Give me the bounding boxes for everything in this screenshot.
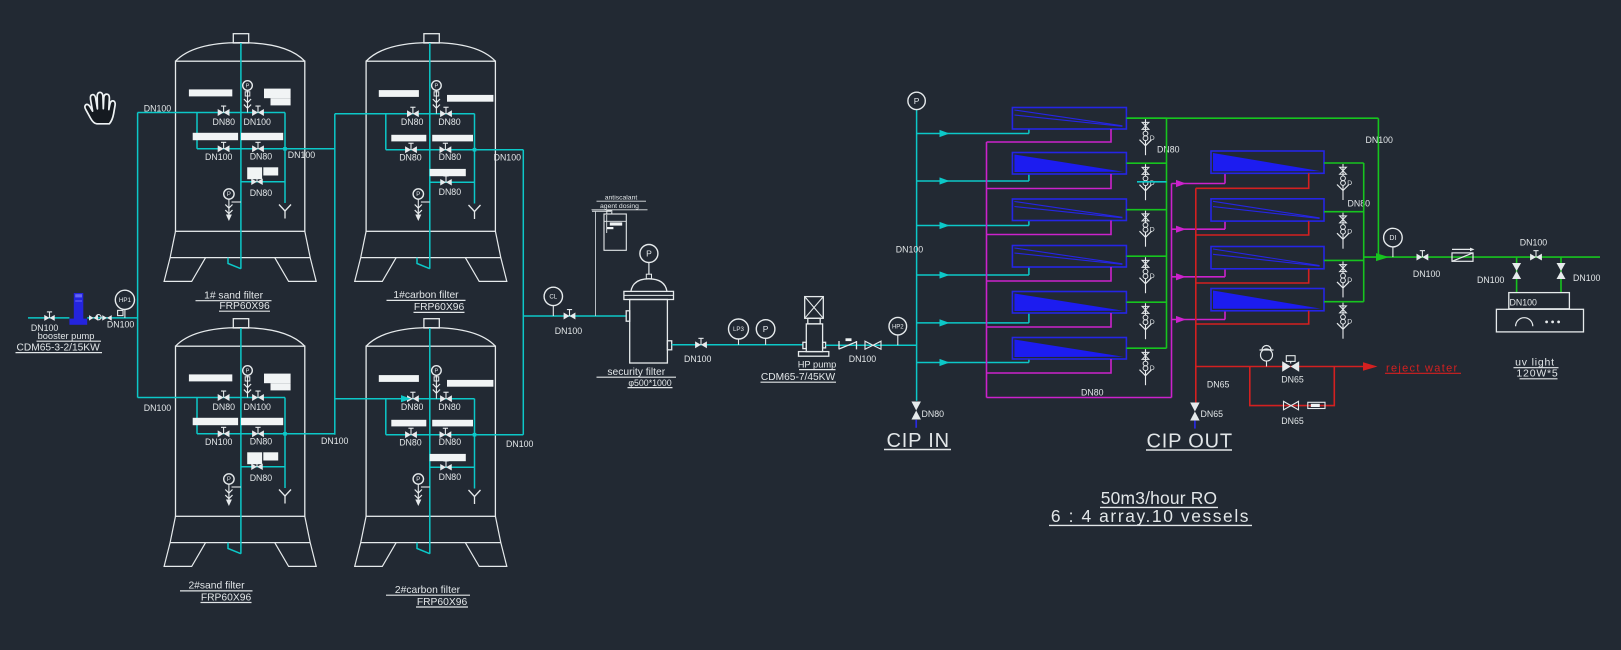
svg-text:DN100: DN100	[1520, 237, 1547, 247]
svg-text:DN100: DN100	[684, 354, 711, 364]
svg-text:CIP OUT: CIP OUT	[1147, 430, 1233, 452]
svg-text:P: P	[435, 369, 439, 375]
svg-text:DN65: DN65	[1201, 409, 1224, 419]
svg-text:P: P	[416, 192, 420, 198]
svg-text:DN80: DN80	[438, 402, 461, 412]
svg-text:1#carbon filter: 1#carbon filter	[393, 290, 459, 301]
svg-text:P: P	[914, 96, 920, 106]
svg-text:DN100: DN100	[896, 245, 923, 255]
svg-text:HP pump: HP pump	[798, 360, 837, 370]
svg-text:P: P	[227, 192, 231, 198]
svg-text:CL: CL	[549, 294, 557, 301]
svg-text:DN80: DN80	[439, 437, 462, 447]
svg-text:DN80: DN80	[399, 437, 422, 447]
svg-text:DN80: DN80	[439, 152, 462, 162]
svg-text:DN100: DN100	[144, 403, 171, 413]
svg-text:DN80: DN80	[250, 188, 273, 198]
svg-text:DN80: DN80	[438, 117, 461, 127]
svg-text:CDM65-3-2/15KW: CDM65-3-2/15KW	[17, 342, 101, 353]
svg-text:DN80: DN80	[250, 151, 273, 161]
svg-text:2#sand filter: 2#sand filter	[188, 581, 245, 592]
svg-text:agent dosing: agent dosing	[600, 203, 639, 210]
svg-text:P: P	[246, 84, 250, 90]
svg-text:DN100: DN100	[244, 402, 271, 412]
svg-text:antiscalant: antiscalant	[605, 195, 638, 202]
svg-text:DN100: DN100	[494, 153, 521, 163]
svg-text:DN65: DN65	[1281, 416, 1304, 426]
svg-text:DN80: DN80	[1348, 198, 1371, 208]
svg-text:booster pump: booster pump	[38, 331, 95, 341]
svg-text:P: P	[416, 477, 420, 483]
svg-text:φ500*1000: φ500*1000	[628, 378, 671, 388]
svg-text:DN100: DN100	[506, 439, 533, 449]
svg-text:HP2: HP2	[892, 324, 904, 330]
svg-text:6 : 4 array.10 vessels: 6 : 4 array.10 vessels	[1051, 506, 1250, 526]
svg-text:DN80: DN80	[213, 117, 236, 127]
svg-text:DN100: DN100	[244, 117, 271, 127]
svg-text:DN100: DN100	[1413, 269, 1440, 279]
svg-text:DN80: DN80	[250, 436, 273, 446]
svg-text:P: P	[646, 249, 652, 259]
svg-text:120W*5: 120W*5	[1516, 368, 1558, 380]
svg-text:DN80: DN80	[439, 472, 462, 482]
svg-text:DN80: DN80	[213, 402, 236, 412]
svg-text:DN80: DN80	[1081, 388, 1104, 398]
svg-text:FRP60X96: FRP60X96	[417, 597, 468, 608]
svg-text:CIP IN: CIP IN	[887, 430, 950, 452]
svg-text:DN100: DN100	[1510, 297, 1537, 307]
svg-text:CDM65-7/45KW: CDM65-7/45KW	[761, 372, 836, 383]
svg-text:FRP60X96: FRP60X96	[414, 302, 465, 313]
svg-text:DI: DI	[1389, 235, 1396, 242]
svg-text:50m3/hour RO: 50m3/hour RO	[1101, 488, 1217, 508]
svg-text:LP3: LP3	[733, 326, 745, 333]
svg-text:reject water: reject water	[1386, 362, 1458, 374]
svg-text:P: P	[227, 477, 231, 483]
svg-text:DN100: DN100	[1366, 135, 1393, 145]
svg-text:HP1: HP1	[119, 297, 132, 304]
svg-text:DN100: DN100	[1573, 273, 1600, 283]
svg-text:FRP60X96: FRP60X96	[219, 301, 270, 312]
svg-text:DN100: DN100	[555, 326, 582, 336]
svg-text:DN100: DN100	[321, 436, 348, 446]
svg-text:DN100: DN100	[144, 103, 171, 113]
svg-text:P: P	[246, 369, 250, 375]
svg-text:DN80: DN80	[401, 402, 424, 412]
svg-text:DN100: DN100	[849, 354, 876, 364]
svg-text:2#carbon filter: 2#carbon filter	[395, 585, 461, 596]
svg-text:DN80: DN80	[250, 473, 273, 483]
svg-text:DN65: DN65	[1281, 374, 1304, 384]
svg-text:DN65: DN65	[1207, 379, 1230, 389]
svg-text:DN100: DN100	[205, 152, 232, 162]
svg-text:DN100: DN100	[1477, 275, 1504, 285]
svg-text:DN80: DN80	[439, 187, 462, 197]
svg-text:DN80: DN80	[1157, 145, 1180, 155]
svg-text:DN80: DN80	[922, 409, 945, 419]
svg-text:P: P	[763, 324, 769, 334]
svg-text:DN80: DN80	[401, 117, 424, 127]
svg-text:P: P	[435, 84, 439, 90]
svg-text:DN100: DN100	[205, 437, 232, 447]
svg-text:DN80: DN80	[399, 152, 422, 162]
svg-text:DN100: DN100	[107, 319, 134, 329]
svg-text:DN100: DN100	[288, 150, 315, 160]
svg-text:security filter: security filter	[607, 367, 665, 378]
svg-text:1# sand filter: 1# sand filter	[204, 291, 264, 302]
svg-text:FRP60X96: FRP60X96	[201, 592, 252, 603]
